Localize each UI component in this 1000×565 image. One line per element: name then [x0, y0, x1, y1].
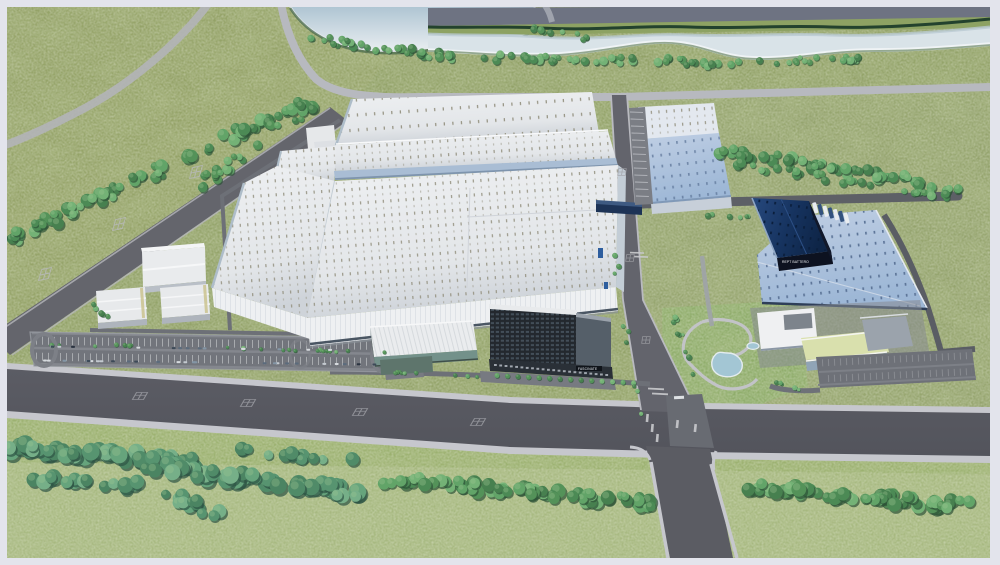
svg-text:FASCINATE: FASCINATE [578, 367, 597, 371]
svg-text:REPT BATTERO: REPT BATTERO [782, 260, 809, 264]
